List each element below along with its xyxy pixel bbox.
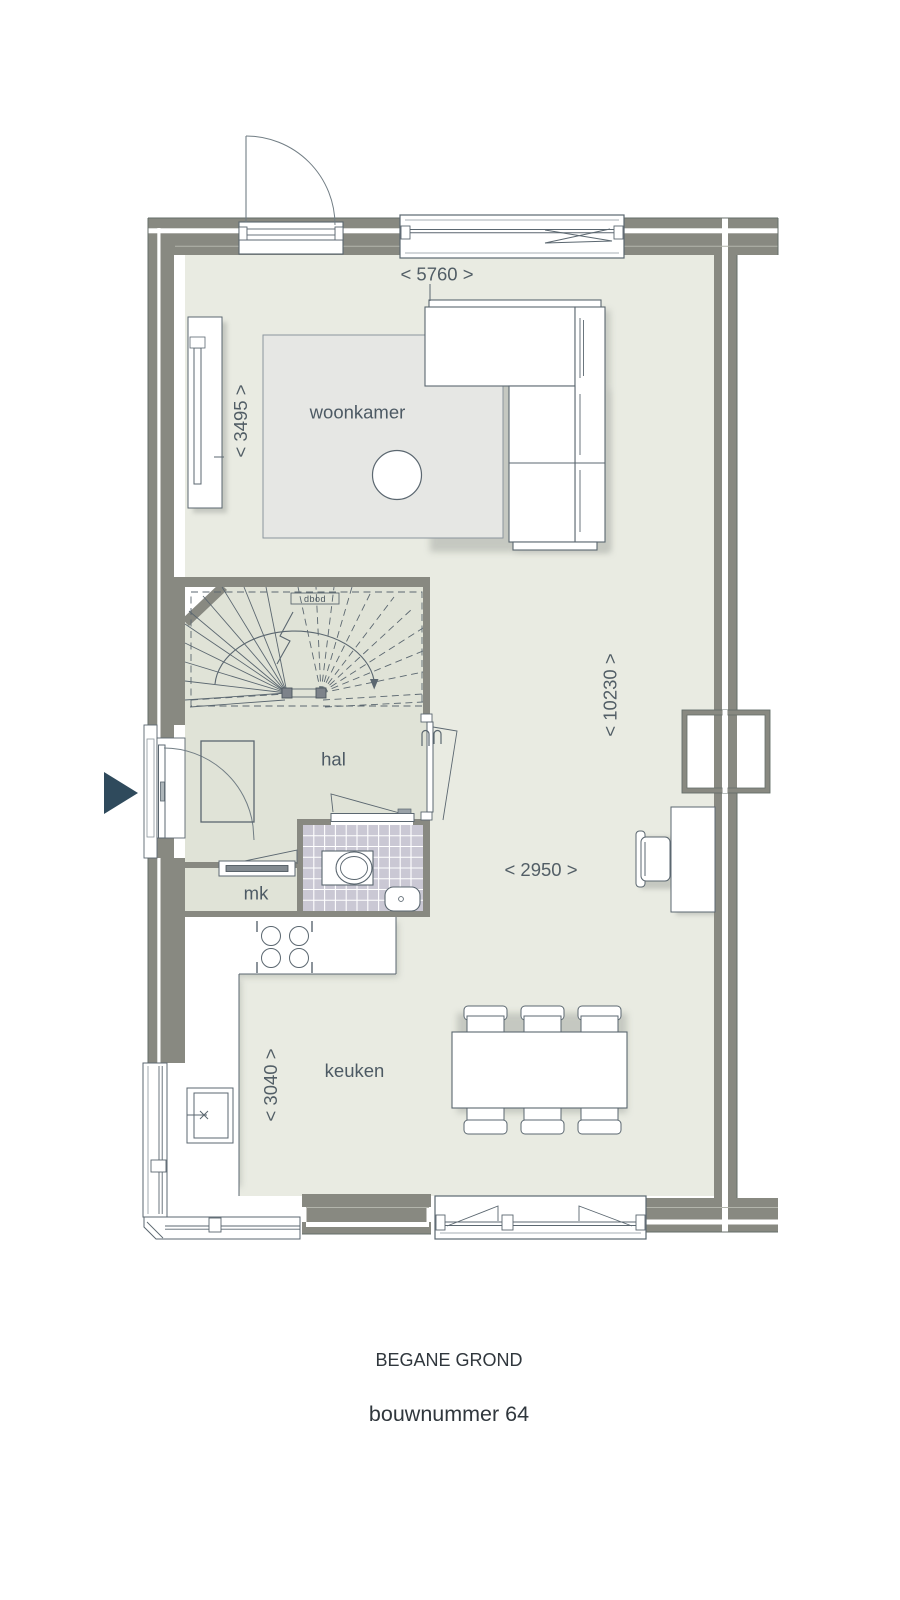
svg-text:< 10230 >: < 10230 > [600, 653, 621, 736]
svg-text:< 5760 >: < 5760 > [400, 264, 473, 285]
svg-text:BEGANE GROND: BEGANE GROND [375, 1350, 522, 1370]
svg-text:bouwnummer 64: bouwnummer 64 [369, 1402, 529, 1426]
svg-text:< 3040 >: < 3040 > [260, 1048, 281, 1121]
svg-text:< 3495 >: < 3495 > [230, 384, 251, 457]
svg-text:mk: mk [244, 883, 269, 904]
svg-text:hal: hal [321, 749, 346, 770]
svg-text:< 2950 >: < 2950 > [504, 859, 577, 880]
svg-text:keuken: keuken [325, 1060, 385, 1081]
svg-text:dbod: dbod [304, 594, 326, 604]
svg-text:woonkamer: woonkamer [309, 402, 406, 423]
